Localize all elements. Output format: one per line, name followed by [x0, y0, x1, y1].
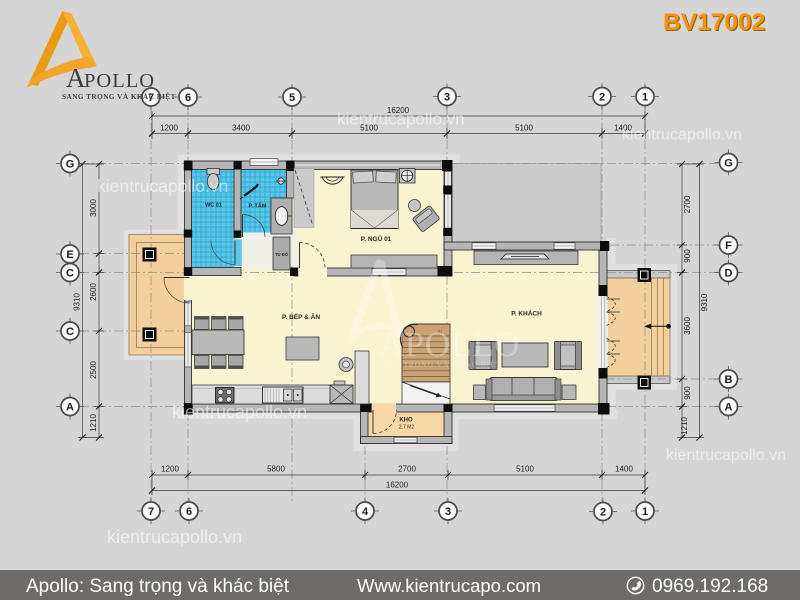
svg-text:2700: 2700 [398, 465, 416, 474]
svg-text:2700: 2700 [683, 195, 692, 213]
svg-text:5100: 5100 [516, 465, 534, 474]
svg-text:1200: 1200 [160, 124, 178, 133]
svg-text:C: C [66, 268, 74, 280]
svg-text:1: 1 [642, 92, 648, 104]
svg-text:A: A [66, 63, 86, 93]
svg-text:kientrucapollo.vn: kientrucapollo.vn [622, 127, 742, 144]
svg-text:SANG TRỌNG VÀ KHÁC BIỆT: SANG TRỌNG VÀ KHÁC BIỆT [62, 91, 176, 101]
svg-text:1200: 1200 [161, 465, 179, 474]
svg-text:7: 7 [148, 506, 154, 518]
svg-text:3: 3 [445, 506, 451, 518]
svg-text:3600: 3600 [683, 317, 692, 335]
svg-text:1400: 1400 [615, 465, 633, 474]
svg-text:kientrucapollo.vn: kientrucapollo.vn [107, 527, 242, 547]
svg-text:P. TẮM: P. TẮM [249, 202, 267, 210]
svg-text:E: E [66, 249, 73, 261]
svg-text:kientrucapollo.vn: kientrucapollo.vn [172, 402, 307, 422]
svg-text:C: C [66, 326, 74, 338]
svg-text:900: 900 [683, 249, 692, 263]
svg-text:3000: 3000 [89, 199, 98, 217]
svg-text:kientrucapollo.vn: kientrucapollo.vn [666, 447, 786, 464]
svg-text:2: 2 [600, 507, 606, 519]
svg-text:2: 2 [599, 92, 605, 104]
svg-text:KHO: KHO [399, 418, 413, 424]
svg-text:6: 6 [185, 92, 191, 104]
svg-text:9310: 9310 [73, 293, 82, 311]
svg-text:Apollo: Sang trọng và khác biệ: Apollo: Sang trọng và khác biệt [26, 576, 290, 597]
svg-text:900: 900 [683, 386, 692, 400]
svg-text:POLLO: POLLO [84, 70, 155, 92]
svg-text:Www.kientrucapo.com: Www.kientrucapo.com [357, 575, 541, 596]
svg-text:1210: 1210 [680, 417, 689, 435]
svg-text:1210: 1210 [89, 414, 98, 432]
svg-text:3400: 3400 [232, 124, 250, 133]
svg-text:1: 1 [642, 506, 648, 518]
svg-text:B: B [725, 374, 733, 386]
svg-text:SANG TRỌNG VÀ KHÁC BIỆT: SANG TRỌNG VÀ KHÁC BIỆT [376, 359, 501, 369]
svg-text:TỦ ĐỒ: TỦ ĐỒ [275, 252, 289, 257]
svg-text:5100: 5100 [515, 124, 533, 133]
svg-text:P. KHÁCH: P. KHÁCH [511, 309, 542, 318]
svg-text:9310: 9310 [700, 293, 709, 311]
svg-text:0969.192.168: 0969.192.168 [652, 576, 768, 597]
svg-text:G: G [66, 159, 75, 171]
svg-text:kientrucapollo.vn: kientrucapollo.vn [337, 110, 465, 129]
svg-text:G: G [724, 158, 733, 170]
svg-text:D: D [725, 268, 733, 280]
svg-text:A: A [66, 402, 74, 414]
svg-text:APOLLO: APOLLO [379, 325, 520, 364]
svg-text:P. NGỦ 01: P. NGỦ 01 [361, 234, 392, 243]
svg-text:kientrucapollo.vn: kientrucapollo.vn [97, 176, 228, 196]
svg-text:WC 01: WC 01 [205, 203, 222, 209]
svg-text:2500: 2500 [89, 361, 98, 379]
svg-text:3: 3 [444, 92, 450, 104]
svg-text:6: 6 [186, 506, 192, 518]
svg-text:16200: 16200 [386, 481, 409, 490]
svg-text:4: 4 [362, 506, 369, 518]
svg-text:5800: 5800 [267, 465, 285, 474]
svg-text:2600: 2600 [89, 283, 98, 301]
svg-text:5: 5 [289, 92, 295, 104]
svg-text:BV17002: BV17002 [663, 9, 765, 36]
svg-text:2.7 M2: 2.7 M2 [399, 425, 415, 431]
svg-text:A: A [725, 402, 733, 414]
svg-text:F: F [725, 240, 732, 252]
